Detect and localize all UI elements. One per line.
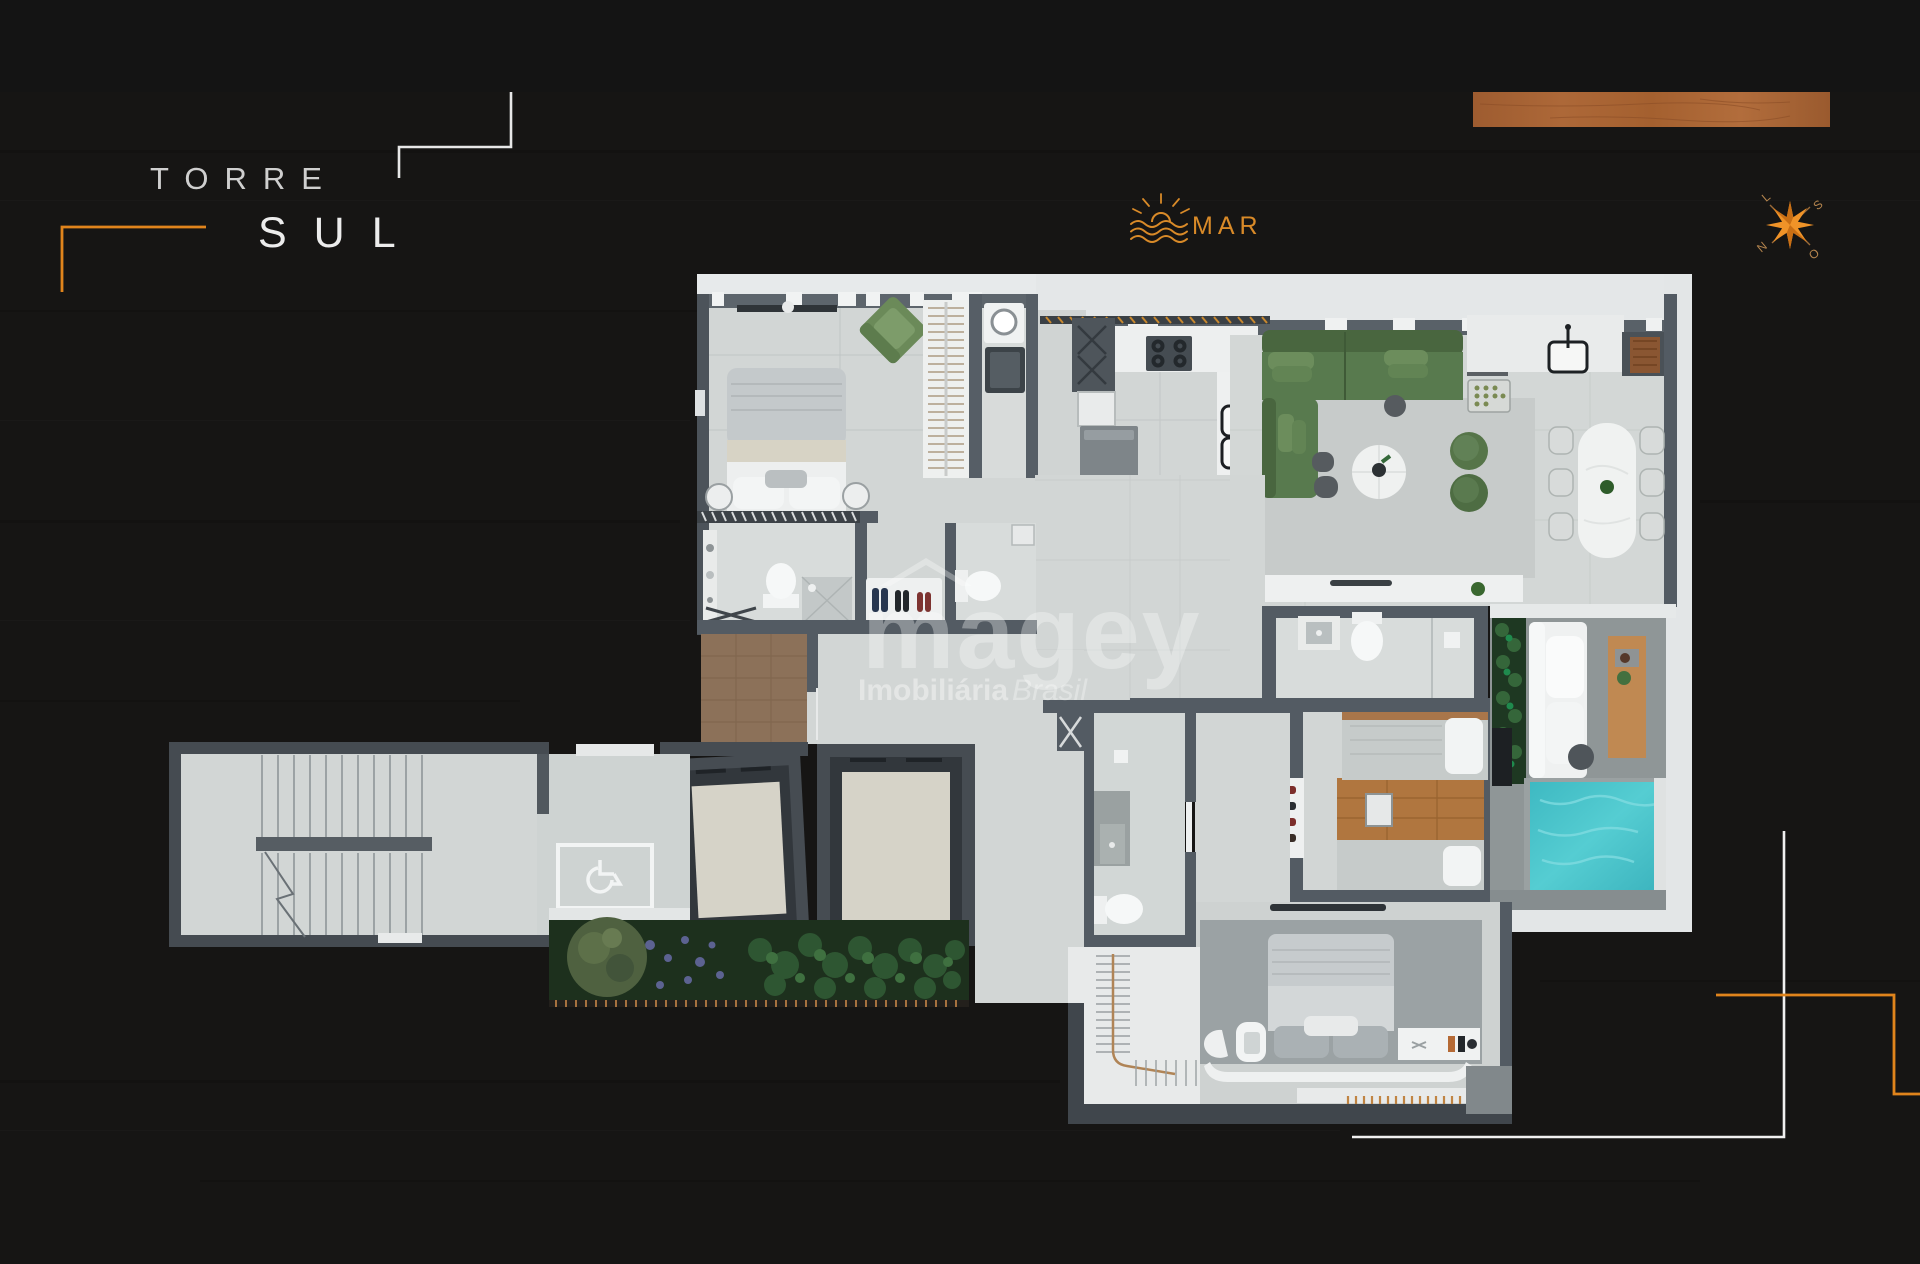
- svg-text:Brasil: Brasil: [1012, 674, 1088, 707]
- svg-text:Imobiliária: Imobiliária: [858, 674, 1008, 707]
- svg-text:TORRE: TORRE: [150, 161, 338, 196]
- svg-text:SUL: SUL: [258, 209, 423, 257]
- svg-text:MAR: MAR: [1192, 212, 1263, 240]
